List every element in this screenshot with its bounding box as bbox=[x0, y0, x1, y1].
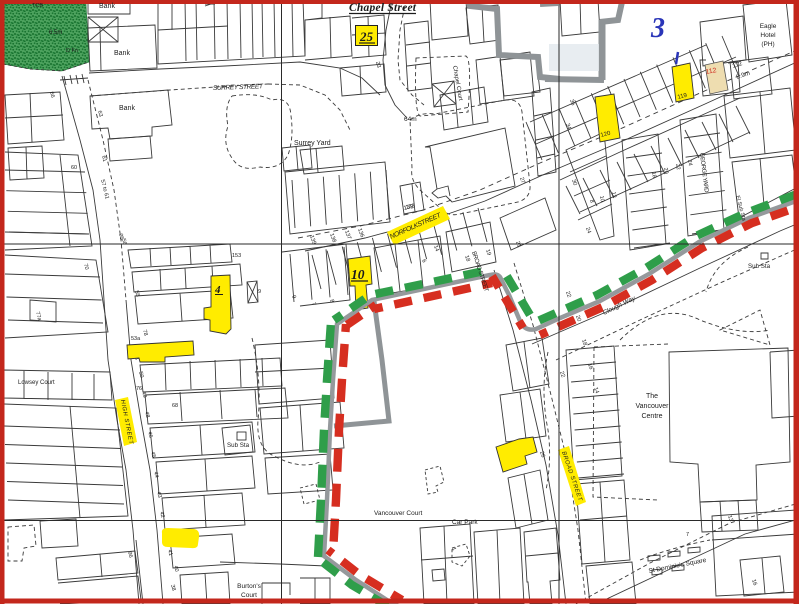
svg-text:Centre: Centre bbox=[641, 413, 662, 420]
svg-text:64m: 64m bbox=[404, 116, 417, 123]
svg-text:Vancouver Court: Vancouver Court bbox=[374, 510, 422, 517]
svg-text:D Fn: D Fn bbox=[66, 48, 78, 54]
svg-text:Eagle: Eagle bbox=[760, 23, 777, 30]
svg-text:TCB: TCB bbox=[32, 3, 43, 9]
svg-text:Bank: Bank bbox=[114, 50, 130, 57]
svg-text:18: 18 bbox=[650, 171, 657, 178]
svg-text:10: 10 bbox=[351, 267, 365, 282]
svg-text:The: The bbox=[646, 393, 658, 400]
svg-text:Chapel Street: Chapel Street bbox=[349, 2, 417, 14]
svg-text:3: 3 bbox=[650, 13, 665, 44]
svg-text:60: 60 bbox=[71, 165, 77, 171]
svg-text:Bank: Bank bbox=[99, 3, 115, 10]
svg-text:Vancouver: Vancouver bbox=[636, 403, 670, 410]
svg-text:24: 24 bbox=[686, 159, 693, 166]
svg-text:Bank: Bank bbox=[119, 105, 135, 112]
svg-text:20: 20 bbox=[662, 167, 669, 174]
svg-text:22: 22 bbox=[674, 163, 681, 170]
svg-text:Sub Sta: Sub Sta bbox=[748, 263, 771, 270]
svg-text:68: 68 bbox=[172, 403, 178, 409]
svg-text:Burton's: Burton's bbox=[237, 583, 261, 590]
svg-text:7: 7 bbox=[686, 532, 689, 538]
svg-text:76: 76 bbox=[136, 386, 142, 392]
svg-text:Surrey Yard: Surrey Yard bbox=[294, 140, 331, 147]
svg-text:153: 153 bbox=[232, 253, 241, 259]
svg-text:Sub Sta: Sub Sta bbox=[227, 442, 250, 449]
svg-text:6.5m: 6.5m bbox=[49, 30, 62, 36]
svg-text:(PH): (PH) bbox=[761, 41, 774, 48]
svg-text:10: 10 bbox=[598, 195, 605, 202]
svg-text:Car Park: Car Park bbox=[452, 519, 478, 526]
svg-text:Court: Court bbox=[241, 592, 257, 599]
svg-text:53a: 53a bbox=[131, 336, 141, 342]
svg-text:Lowsey Court: Lowsey Court bbox=[18, 380, 55, 386]
svg-text:9: 9 bbox=[258, 289, 261, 295]
svg-text:25: 25 bbox=[359, 29, 374, 44]
svg-text:Hotel: Hotel bbox=[760, 32, 776, 39]
svg-text:12: 12 bbox=[610, 191, 617, 198]
